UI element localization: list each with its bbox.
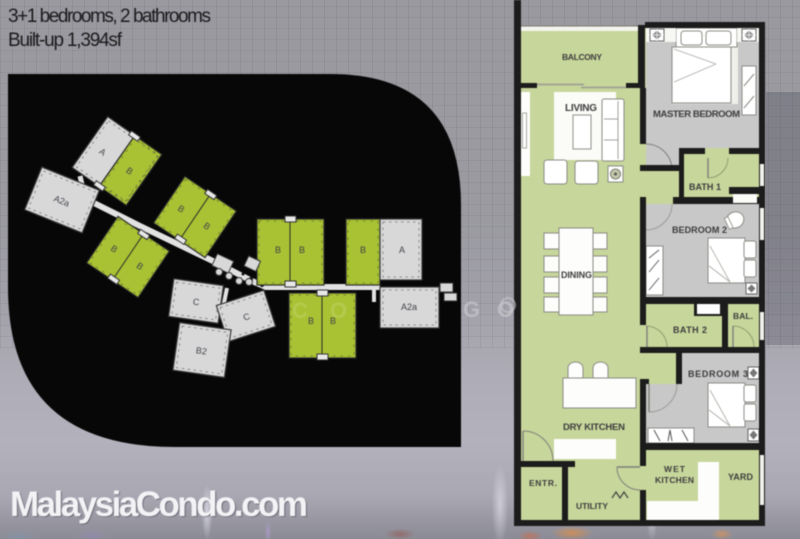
svg-text:WET: WET [664, 464, 686, 474]
svg-text:DINING: DINING [561, 270, 592, 280]
svg-text:B: B [275, 245, 281, 255]
svg-text:C: C [292, 298, 308, 323]
svg-text:3+1 bedrooms, 2 bathrooms: 3+1 bedrooms, 2 bathrooms [8, 6, 211, 27]
svg-text:O: O [330, 298, 347, 323]
svg-text:O: O [497, 297, 514, 322]
svg-text:LIVING: LIVING [565, 103, 597, 114]
svg-text:B: B [360, 245, 366, 255]
svg-text:A: A [399, 245, 405, 255]
svg-text:Built-up 1,394sf: Built-up 1,394sf [8, 30, 123, 51]
svg-text:ENTR.: ENTR. [529, 478, 557, 488]
svg-text:UTILITY: UTILITY [576, 501, 608, 511]
svg-text:BAL.: BAL. [733, 311, 753, 321]
svg-text:BATH 2: BATH 2 [673, 325, 707, 335]
svg-text:MalaysiaCondo.com: MalaysiaCondo.com [10, 485, 308, 524]
svg-text:MASTER BEDROOM: MASTER BEDROOM [653, 109, 740, 120]
svg-text:A2a: A2a [401, 302, 417, 312]
svg-text:G: G [463, 297, 480, 322]
svg-text:B: B [308, 316, 314, 326]
svg-text:KITCHEN: KITCHEN [655, 475, 694, 485]
svg-text:BEDROOM 3: BEDROOM 3 [688, 369, 748, 379]
svg-text:BEDROOM 2: BEDROOM 2 [672, 225, 727, 235]
svg-text:DRY KITCHEN: DRY KITCHEN [563, 422, 625, 433]
svg-text:BATH 1: BATH 1 [689, 182, 721, 192]
svg-text:B: B [299, 245, 305, 255]
svg-text:BALCONY: BALCONY [562, 52, 602, 62]
svg-text:B2: B2 [195, 345, 207, 356]
svg-text:YARD: YARD [728, 472, 754, 482]
